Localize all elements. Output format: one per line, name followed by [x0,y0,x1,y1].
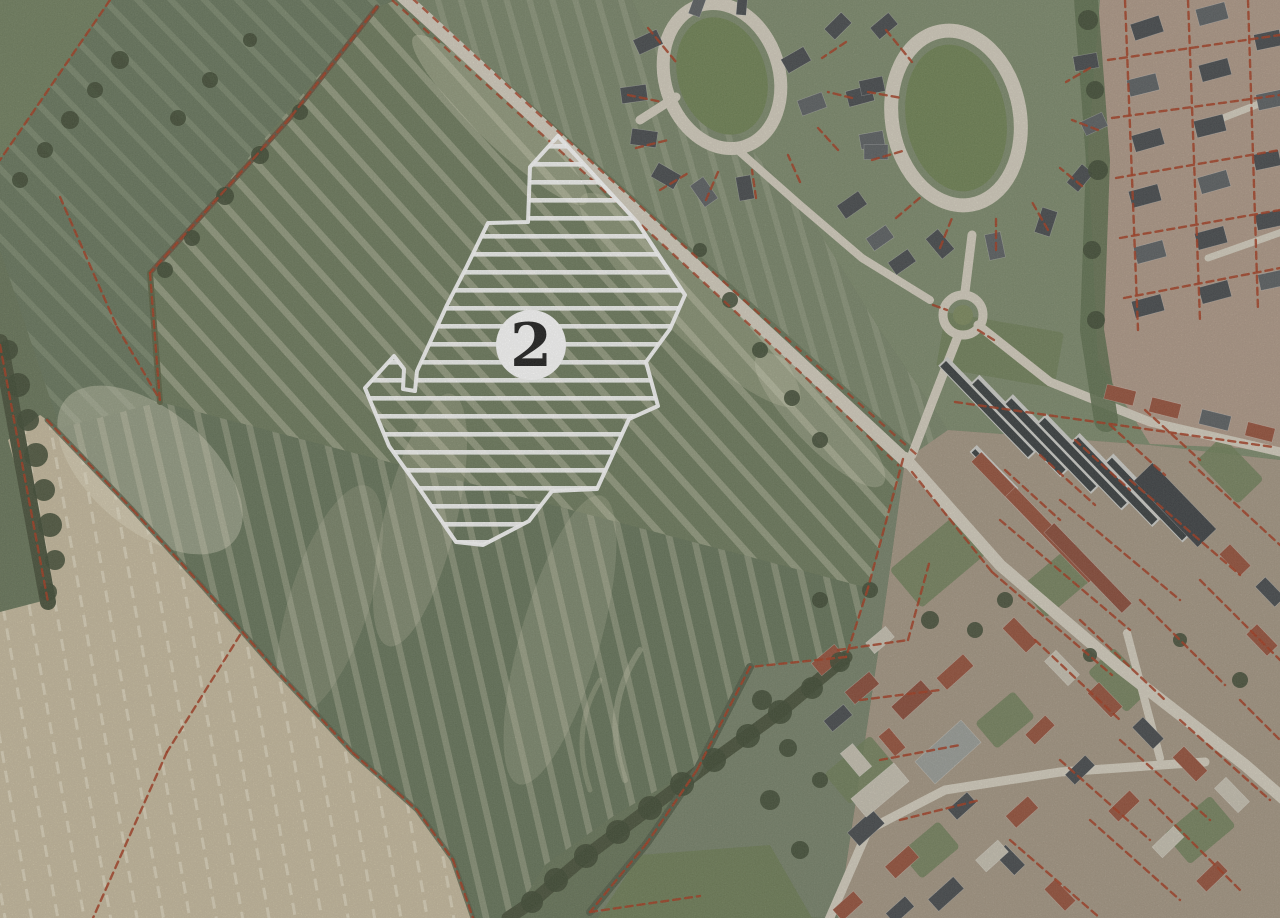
photo-grain-light [0,0,1280,918]
aerial-map: 2 [0,0,1280,918]
aerial-map-canvas: 2 [0,0,1280,918]
